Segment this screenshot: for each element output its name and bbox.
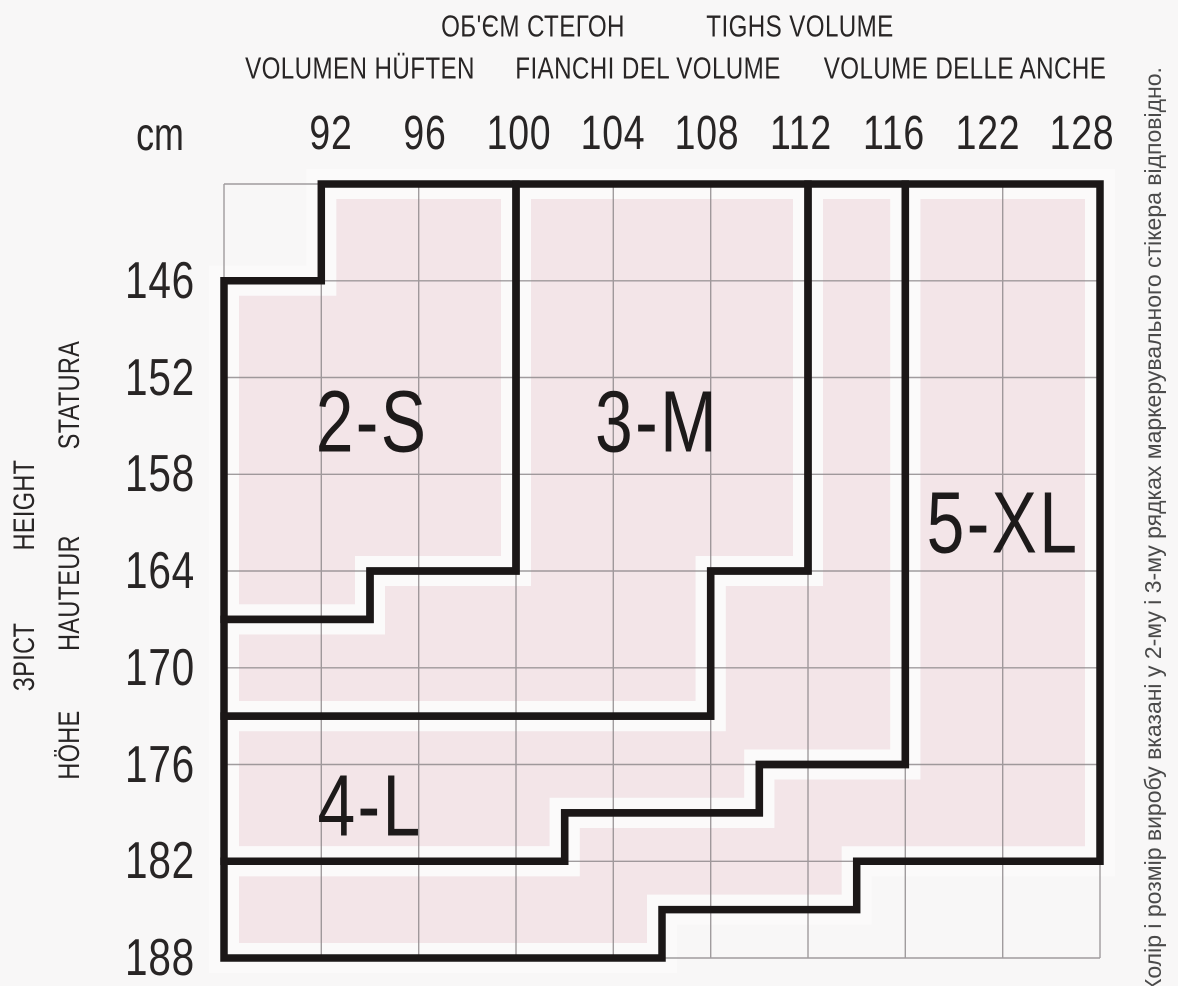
header-title-tighs-volume: TIGHS VOLUME [706, 11, 893, 42]
height-value-158: 158 [125, 448, 195, 500]
hip-value-122: 122 [956, 110, 1021, 158]
height-axis-word-зріст: ЗРІСТ [10, 623, 40, 692]
unit-label-cm: cm [136, 111, 184, 157]
side-note-vertical: Колір і розмір виробу вказані у 2-му і 3… [1139, 0, 1167, 986]
height-axis-word-statura: STATURA [55, 341, 85, 449]
hip-value-100: 100 [486, 110, 551, 158]
height-axis-word-höhe: HÖHE [55, 710, 85, 779]
zone-label-2-S: 2-S [316, 379, 429, 466]
zone-label-5-XL: 5-XL [926, 479, 1079, 566]
hip-value-116: 116 [863, 110, 925, 158]
header-title--: ОБ'ЄМ СТЕГОН [441, 11, 625, 42]
size-chart: ОБ'ЄМ СТЕГОНTIGHS VOLUMEVOLUMEN HÜFTENFI… [0, 0, 1178, 986]
header-title-fianchi-del-volume: FIANCHI DEL VOLUME [515, 53, 780, 84]
header-title-volumen-h-ften: VOLUMEN HÜFTEN [245, 53, 475, 84]
hip-value-92: 92 [309, 110, 352, 158]
height-value-146: 146 [125, 255, 195, 307]
height-value-152: 152 [125, 352, 195, 404]
hip-value-104: 104 [580, 110, 645, 158]
hip-value-96: 96 [403, 110, 446, 158]
hip-value-128: 128 [1050, 110, 1115, 158]
height-axis-word-height: HEIGHT [10, 460, 40, 551]
height-value-170: 170 [125, 642, 195, 694]
hip-value-108: 108 [674, 110, 739, 158]
zone-label-4-L: 4-L [317, 763, 422, 850]
height-value-188: 188 [125, 932, 195, 984]
height-value-164: 164 [125, 545, 195, 597]
height-value-176: 176 [125, 739, 195, 791]
height-value-182: 182 [125, 835, 195, 887]
hip-value-112: 112 [769, 110, 831, 158]
zone-label-3-M: 3-M [595, 379, 719, 466]
header-title-volume-delle-anche: VOLUME DELLE ANCHE [824, 53, 1106, 84]
height-axis-word-hauteur: HAUTEUR [55, 535, 85, 651]
